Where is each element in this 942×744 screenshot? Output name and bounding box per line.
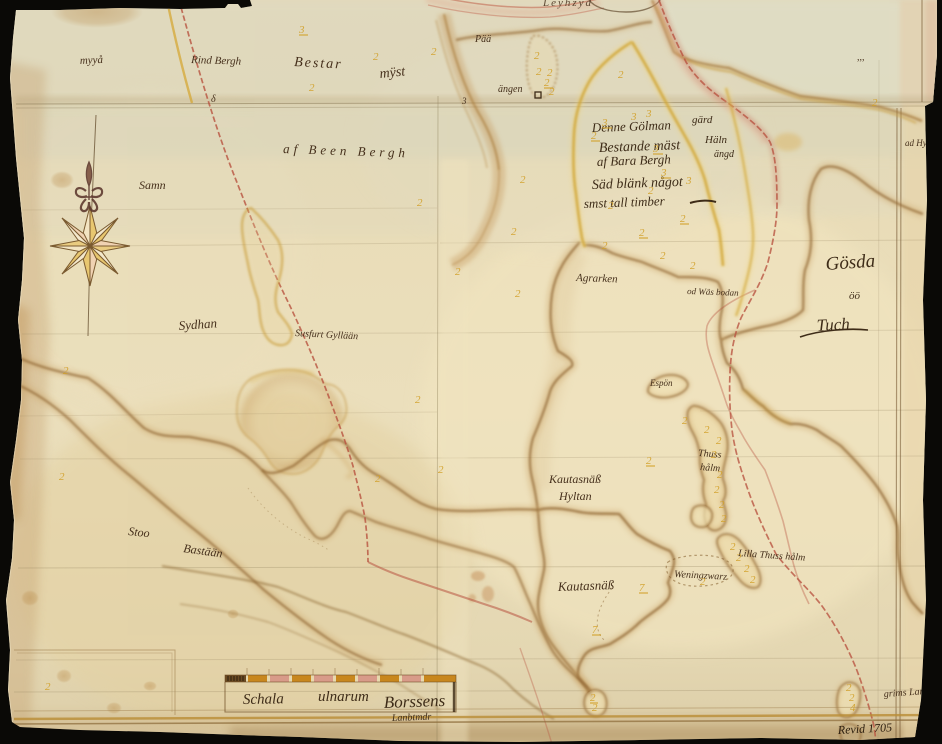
svg-text:2: 2 xyxy=(660,250,666,262)
svg-text:2: 2 xyxy=(511,226,517,238)
svg-text:3: 3 xyxy=(461,96,467,106)
svg-text:2: 2 xyxy=(415,394,421,406)
svg-text:2: 2 xyxy=(45,681,51,693)
svg-text:2: 2 xyxy=(59,471,65,483)
svg-text:Bestar: Bestar xyxy=(294,55,343,73)
svg-text:Hyltan: Hyltan xyxy=(558,489,592,503)
svg-text:2: 2 xyxy=(515,288,521,300)
svg-text:Pää: Pää xyxy=(474,34,491,45)
svg-text:mÿst: mÿst xyxy=(379,64,407,82)
svg-text:3: 3 xyxy=(652,143,659,155)
svg-text:2: 2 xyxy=(591,130,597,142)
svg-text:Häln: Häln xyxy=(704,134,728,146)
svg-text:3: 3 xyxy=(601,117,608,129)
svg-text:2: 2 xyxy=(704,424,710,436)
svg-text:2: 2 xyxy=(438,464,444,476)
svg-text:Espön: Espön xyxy=(649,378,673,388)
svg-text:Samn: Samn xyxy=(139,178,166,192)
svg-text:Agrarken: Agrarken xyxy=(575,272,618,285)
svg-text:2: 2 xyxy=(536,66,542,78)
svg-text:2: 2 xyxy=(592,702,598,714)
svg-text:2: 2 xyxy=(608,200,614,212)
svg-text:ängen: ängen xyxy=(498,84,522,95)
svg-text:2: 2 xyxy=(719,499,725,511)
svg-text:2: 2 xyxy=(690,260,696,272)
svg-text:2: 2 xyxy=(602,240,608,252)
svg-text:Kautasnäß: Kautasnäß xyxy=(557,577,615,594)
svg-text:2: 2 xyxy=(872,97,878,109)
svg-text:Lanbtmdr: Lanbtmdr xyxy=(391,712,432,724)
svg-text:2: 2 xyxy=(750,574,756,586)
svg-text:3: 3 xyxy=(685,175,692,187)
svg-text:öö: öö xyxy=(849,290,861,302)
svg-text:2: 2 xyxy=(700,576,706,588)
svg-text:Stoo: Stoo xyxy=(128,524,151,540)
svg-text:Sydhan: Sydhan xyxy=(178,315,217,333)
svg-text:2: 2 xyxy=(682,415,688,427)
svg-text:2: 2 xyxy=(373,51,379,63)
svg-text:2: 2 xyxy=(646,455,652,467)
svg-text:2: 2 xyxy=(714,484,720,496)
svg-text:7: 7 xyxy=(639,582,645,594)
svg-text:2: 2 xyxy=(639,227,645,239)
svg-text:2: 2 xyxy=(417,197,423,209)
svg-text:od Wäs bodan: od Wäs bodan xyxy=(687,286,739,298)
svg-text:myyå: myyå xyxy=(80,54,104,67)
svg-text:3: 3 xyxy=(660,167,667,179)
svg-text:,,,: ,,, xyxy=(857,52,865,63)
svg-text:3: 3 xyxy=(630,111,637,123)
svg-text:Rind Bergh: Rind Bergh xyxy=(190,54,242,68)
svg-text:2: 2 xyxy=(455,266,461,278)
svg-text:2: 2 xyxy=(63,365,69,377)
svg-text:δ: δ xyxy=(211,94,216,105)
svg-text:2: 2 xyxy=(717,469,723,481)
svg-text:2: 2 xyxy=(520,174,526,186)
svg-text:Gösda: Gösda xyxy=(825,251,876,275)
svg-text:3: 3 xyxy=(298,24,305,36)
svg-text:2: 2 xyxy=(375,473,381,485)
svg-text:Borssens: Borssens xyxy=(383,691,445,712)
svg-text:2: 2 xyxy=(680,213,686,225)
svg-text:Thuss: Thuss xyxy=(698,448,722,461)
svg-text:Schala: Schala xyxy=(243,691,284,708)
svg-text:ulnarum: ulnarum xyxy=(318,689,369,705)
svg-text:2: 2 xyxy=(534,50,540,62)
svg-text:2: 2 xyxy=(721,513,727,525)
svg-text:2: 2 xyxy=(431,46,437,58)
svg-text:4: 4 xyxy=(850,702,856,714)
svg-text:3: 3 xyxy=(645,108,652,120)
svg-text:gärd: gärd xyxy=(692,114,713,126)
svg-text:7: 7 xyxy=(592,624,598,636)
svg-text:smst tall timber: smst tall timber xyxy=(584,193,666,211)
svg-text:Leyhzyd: Leyhzyd xyxy=(542,0,593,9)
svg-text:Kautasnäß: Kautasnäß xyxy=(548,472,601,486)
svg-text:2: 2 xyxy=(711,449,717,461)
svg-text:2: 2 xyxy=(648,185,654,197)
svg-text:2: 2 xyxy=(716,435,722,447)
svg-text:2: 2 xyxy=(309,82,315,94)
svg-text:ängd: ängd xyxy=(714,149,735,160)
svg-text:Revid 1705: Revid 1705 xyxy=(836,720,892,737)
svg-text:2: 2 xyxy=(736,552,742,564)
svg-text:2: 2 xyxy=(618,69,624,81)
